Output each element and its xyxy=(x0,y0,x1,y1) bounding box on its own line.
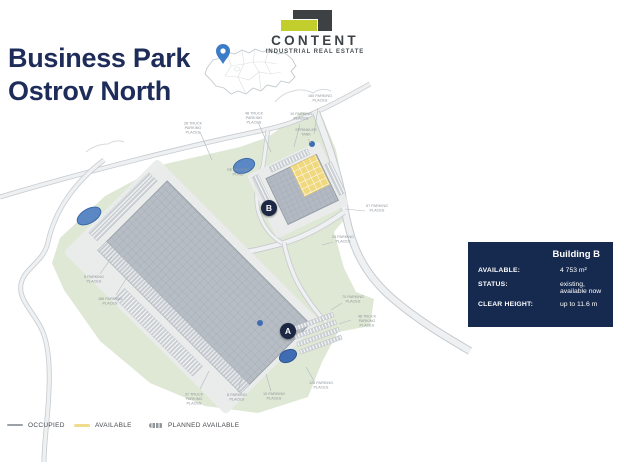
site-label: 10 PARKING PLACES xyxy=(285,113,317,122)
info-value: 4 753 m² xyxy=(560,267,603,274)
site-label: 57 PARKING PLACES xyxy=(361,205,393,214)
info-row-available: AVAILABLE: 4 753 m² xyxy=(478,267,603,274)
info-value: up to 11.6 m xyxy=(560,301,603,308)
site-label: 24 PARKING PLACES xyxy=(327,236,359,245)
site-label: 48 TRUCK PARKING PLACES xyxy=(238,112,270,125)
page-title-line1: Business Park xyxy=(8,42,190,75)
page-title: Business Park Ostrov North xyxy=(8,42,190,108)
legend-item-available: AVAILABLE xyxy=(74,420,132,430)
info-value: existing, available now xyxy=(560,281,603,295)
logo-tagline: INDUSTRIAL REAL ESTATE xyxy=(262,49,368,55)
site-label: 8 PARKING PLACES xyxy=(78,276,110,285)
planned-available-swatch-icon xyxy=(149,423,163,428)
info-label: CLEAR HEIGHT: xyxy=(478,301,560,308)
available-swatch-icon xyxy=(74,424,90,427)
building-a-marker[interactable]: A xyxy=(280,323,296,339)
occupied-swatch-icon xyxy=(7,424,23,427)
site-label: 160 PARKING PLACES xyxy=(304,95,336,104)
legend-label: AVAILABLE xyxy=(95,422,132,429)
site-label: 128 PARKING PLACES xyxy=(305,382,337,391)
site-label: 185 PARKING PLACES xyxy=(94,298,126,307)
site-label: 8 PARKING PLACES xyxy=(221,394,253,403)
logo-brand-text: CONTENT xyxy=(262,33,368,48)
info-label: STATUS: xyxy=(478,281,560,295)
site-label: 70 PARKING PLACES xyxy=(337,296,369,305)
building-b-marker[interactable]: B xyxy=(261,200,277,216)
site-label: 37 TRUCK PARKING PLACES xyxy=(178,393,210,406)
legend-label: OCCUPIED xyxy=(28,422,65,429)
site-label: 48 TRUCK PARKING PLACES xyxy=(351,315,383,328)
info-label: AVAILABLE: xyxy=(478,267,560,274)
page-title-line2: Ostrov North xyxy=(8,75,190,108)
legend-item-planned-available: PLANNED AVAILABLE xyxy=(149,420,239,430)
building-info-panel: Building B AVAILABLE: 4 753 m² STATUS: e… xyxy=(468,242,613,327)
site-label: 10 PARKING PLACES xyxy=(258,393,290,402)
logo-lime-rect xyxy=(281,19,318,31)
info-panel-title: Building B xyxy=(478,249,603,260)
page: 28 TRUCK PARKING PLACES 48 TRUCK PARKING… xyxy=(0,0,624,468)
site-label: 28 TRUCK PARKING PLACES xyxy=(177,122,209,135)
legend-label: PLANNED AVAILABLE xyxy=(168,422,239,429)
company-logo: CONTENT INDUSTRIAL REAL ESTATE xyxy=(262,4,368,56)
site-label: RETENTION POND xyxy=(222,169,254,178)
sprinkler-tank xyxy=(257,320,263,326)
site-label: SPRINKLER TANK xyxy=(290,129,322,138)
info-row-status: STATUS: existing, available now xyxy=(478,281,603,295)
legend-item-occupied: OCCUPIED xyxy=(7,420,65,430)
info-row-clear-height: CLEAR HEIGHT: up to 11.6 m xyxy=(478,301,603,308)
